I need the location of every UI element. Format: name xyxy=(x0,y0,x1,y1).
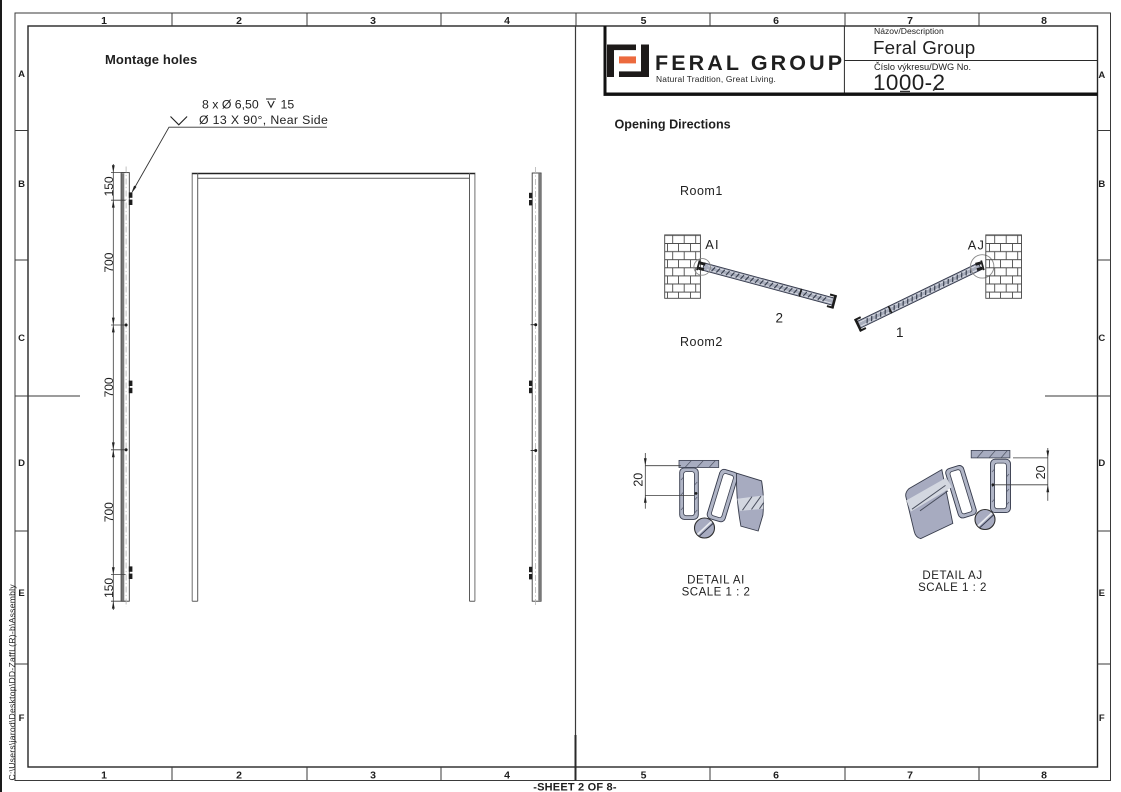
svg-text:6: 6 xyxy=(773,770,779,782)
svg-text:Room1: Room1 xyxy=(680,184,723,198)
svg-text:C: C xyxy=(1098,333,1105,344)
svg-text:D: D xyxy=(18,458,25,469)
svg-text:E: E xyxy=(1099,588,1105,599)
svg-text:8: 8 xyxy=(1041,15,1047,27)
svg-text:A: A xyxy=(18,69,25,80)
svg-text:4: 4 xyxy=(504,15,510,27)
svg-text:C: C xyxy=(18,333,25,344)
svg-text:E: E xyxy=(18,588,24,599)
svg-text:8 x Ø 6,50: 8 x Ø 6,50 xyxy=(202,98,259,112)
svg-text:A: A xyxy=(1098,70,1105,81)
svg-text:8: 8 xyxy=(1041,770,1047,782)
svg-text:F: F xyxy=(19,713,25,724)
svg-text:Ø 13 X 90°, Near Side: Ø 13 X 90°, Near Side xyxy=(199,113,328,127)
svg-text:AJ: AJ xyxy=(968,237,985,252)
svg-text:F: F xyxy=(1099,713,1105,724)
svg-text:20: 20 xyxy=(1034,465,1048,479)
svg-text:1: 1 xyxy=(101,15,107,27)
svg-text:4: 4 xyxy=(504,770,510,782)
svg-text:Opening Directions: Opening Directions xyxy=(615,118,731,132)
svg-text:D: D xyxy=(1098,458,1105,469)
svg-text:Názov/Description: Názov/Description xyxy=(874,26,944,36)
svg-text:B: B xyxy=(1098,179,1105,190)
svg-text:DETAIL AI: DETAIL AI xyxy=(687,575,745,587)
svg-text:AI: AI xyxy=(705,237,720,252)
svg-text:2: 2 xyxy=(236,15,242,27)
svg-text:SCALE 1 : 2: SCALE 1 : 2 xyxy=(918,582,987,594)
svg-text:DETAIL AJ: DETAIL AJ xyxy=(922,570,982,582)
svg-text:-SHEET 2 OF 8-: -SHEET 2 OF 8- xyxy=(533,782,617,792)
svg-text:B: B xyxy=(18,179,25,190)
svg-text:700: 700 xyxy=(102,377,116,397)
svg-text:C:\Users\jarod\Desktop\DD-Zaff: C:\Users\jarod\Desktop\DD-ZaffL(R)-b\Ass… xyxy=(7,584,17,781)
svg-text:Feral Group: Feral Group xyxy=(873,37,975,58)
svg-text:Natural Tradition, Great Livin: Natural Tradition, Great Living. xyxy=(656,74,776,84)
svg-text:1: 1 xyxy=(101,770,107,782)
svg-text:1: 1 xyxy=(896,325,904,340)
svg-text:3: 3 xyxy=(370,770,376,782)
svg-text:2: 2 xyxy=(776,311,784,326)
svg-text:7: 7 xyxy=(907,770,913,782)
svg-text:6: 6 xyxy=(773,15,779,27)
svg-text:5: 5 xyxy=(641,770,647,782)
svg-text:2: 2 xyxy=(236,770,242,782)
svg-text:150: 150 xyxy=(102,578,116,598)
svg-text:Room2: Room2 xyxy=(680,335,723,349)
svg-text:5: 5 xyxy=(641,15,647,27)
svg-text:3: 3 xyxy=(370,15,376,27)
svg-text:150: 150 xyxy=(102,176,116,196)
svg-text:SCALE 1 : 2: SCALE 1 : 2 xyxy=(682,587,751,599)
svg-text:FERAL GROUP: FERAL GROUP xyxy=(655,51,845,75)
svg-text:700: 700 xyxy=(102,502,116,522)
svg-text:700: 700 xyxy=(102,252,116,272)
svg-text:Montage holes: Montage holes xyxy=(105,52,197,67)
svg-text:15: 15 xyxy=(281,98,295,112)
svg-text:20: 20 xyxy=(632,473,646,487)
